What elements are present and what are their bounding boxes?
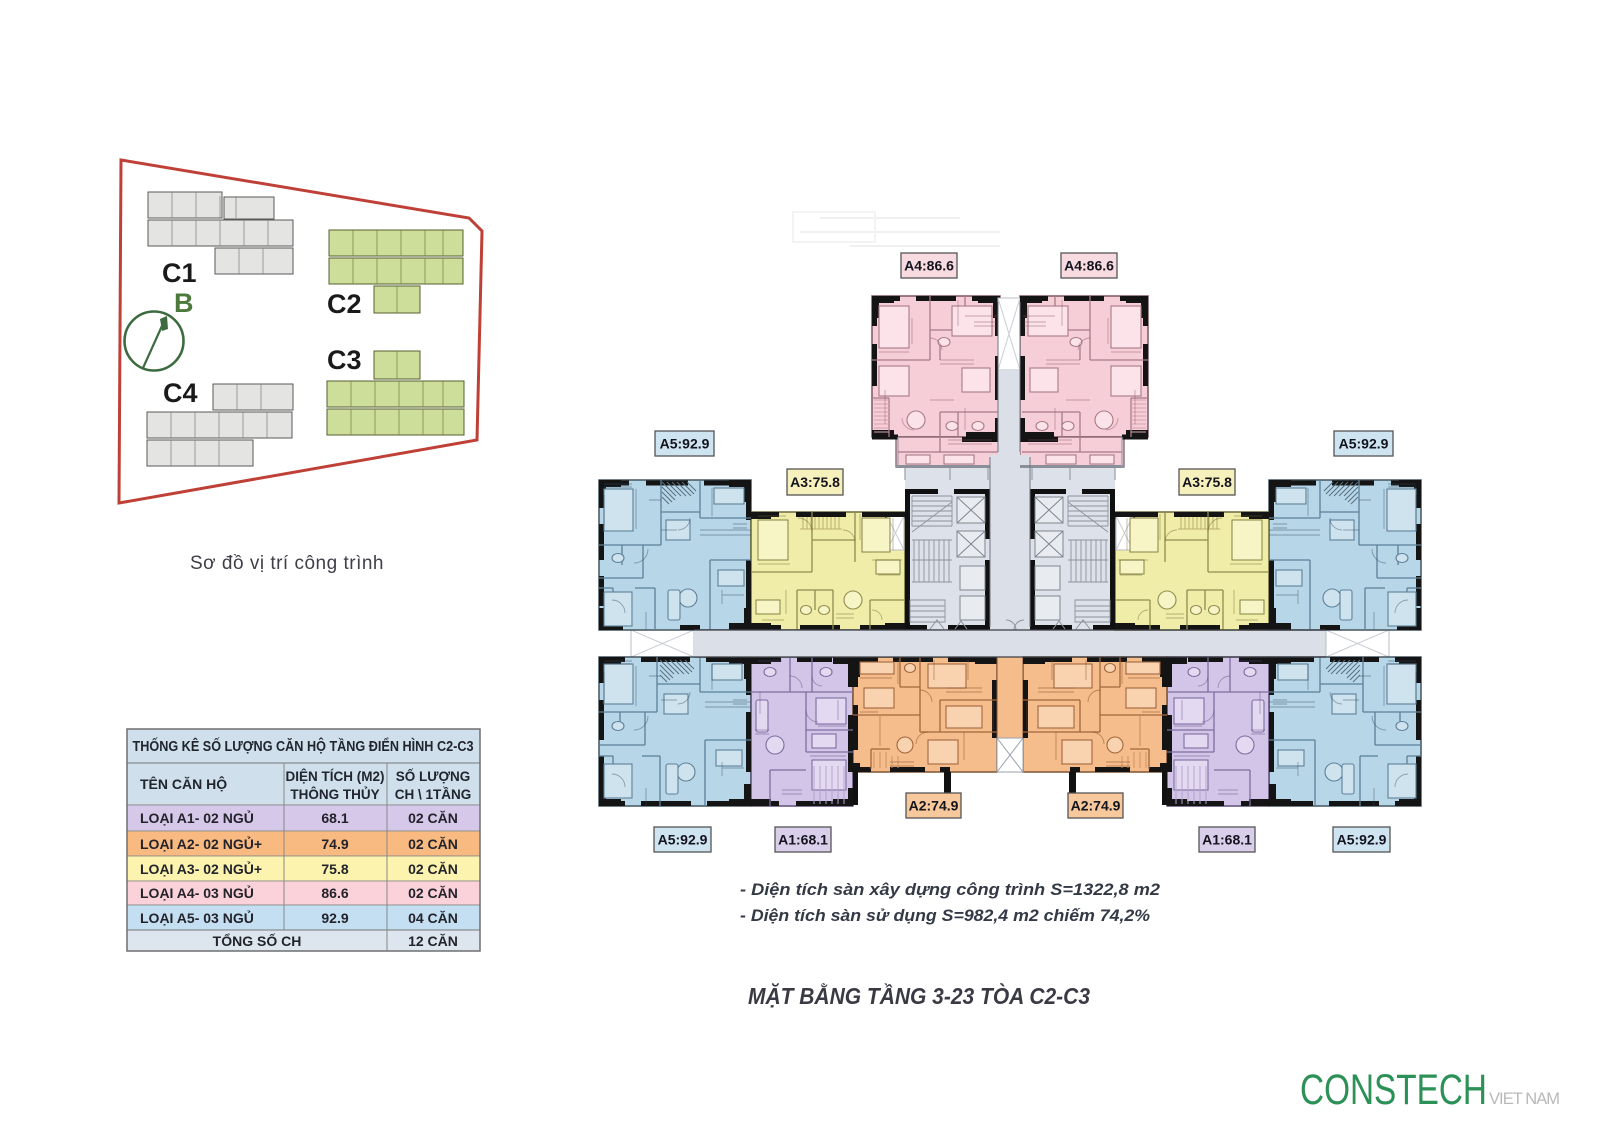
svg-text:A4:86.6: A4:86.6 xyxy=(1064,258,1114,274)
svg-text:SỐ LƯỢNG: SỐ LƯỢNG xyxy=(396,769,470,784)
svg-text:A1:68.1: A1:68.1 xyxy=(1202,832,1252,848)
svg-text:LOẠI A4- 03 NGỦ: LOẠI A4- 03 NGỦ xyxy=(140,884,254,901)
svg-text:A2:74.9: A2:74.9 xyxy=(1071,798,1121,814)
svg-text:LOẠI A1- 02 NGỦ: LOẠI A1- 02 NGỦ xyxy=(140,809,254,826)
svg-text:DIỆN TÍCH (M2): DIỆN TÍCH (M2) xyxy=(286,769,385,784)
svg-text:04 CĂN: 04 CĂN xyxy=(408,910,458,926)
svg-text:A5:92.9: A5:92.9 xyxy=(1339,436,1389,452)
svg-text:68.1: 68.1 xyxy=(321,810,348,826)
svg-text:LOẠI A3- 02 NGỦ+: LOẠI A3- 02 NGỦ+ xyxy=(140,860,262,877)
svg-text:02 CĂN: 02 CĂN xyxy=(408,885,458,901)
svg-text:TỔNG SỐ CH: TỔNG SỐ CH xyxy=(213,932,302,949)
svg-text:92.9: 92.9 xyxy=(321,910,348,926)
svg-text:A3:75.8: A3:75.8 xyxy=(1182,474,1232,490)
svg-text:C4: C4 xyxy=(163,378,198,408)
svg-text:- Diện tích sàn sử dụng S=982,: - Diện tích sàn sử dụng S=982,4 m2 chiếm… xyxy=(740,906,1150,925)
svg-text:Sơ đồ vị trí công trình: Sơ đồ vị trí công trình xyxy=(190,553,384,574)
svg-text:C1: C1 xyxy=(162,258,197,288)
svg-text:LOẠI A2- 02 NGỦ+: LOẠI A2- 02 NGỦ+ xyxy=(140,835,262,852)
svg-text:A5:92.9: A5:92.9 xyxy=(658,832,708,848)
svg-text:CH \ 1TẦNG: CH \ 1TẦNG xyxy=(395,787,472,802)
svg-text:C3: C3 xyxy=(327,345,362,375)
svg-text:A2:74.9: A2:74.9 xyxy=(909,798,959,814)
svg-text:B: B xyxy=(174,288,194,318)
svg-text:A1:68.1: A1:68.1 xyxy=(778,832,828,848)
svg-text:- Diện tích sàn xây dựng công: - Diện tích sàn xây dựng công trình S=13… xyxy=(740,880,1161,899)
svg-text:75.8: 75.8 xyxy=(321,861,348,877)
svg-text:MẶT BẰNG TẦNG 3-23 TÒA C2-C3: MẶT BẰNG TẦNG 3-23 TÒA C2-C3 xyxy=(748,982,1090,1009)
svg-text:VIET NAM: VIET NAM xyxy=(1489,1090,1562,1108)
svg-text:A5:92.9: A5:92.9 xyxy=(1337,832,1387,848)
svg-text:A5:92.9: A5:92.9 xyxy=(660,436,710,452)
svg-text:THỐNG KÊ SỐ LƯỢNG CĂN HỘ TẦNG: THỐNG KÊ SỐ LƯỢNG CĂN HỘ TẦNG ĐIỂN HÌNH … xyxy=(133,737,474,755)
svg-text:A3:75.8: A3:75.8 xyxy=(790,474,840,490)
svg-text:02 CĂN: 02 CĂN xyxy=(408,810,458,826)
svg-text:86.6: 86.6 xyxy=(321,885,348,901)
svg-text:C2: C2 xyxy=(327,289,362,319)
svg-text:TÊN CĂN HỘ: TÊN CĂN HỘ xyxy=(140,775,227,792)
svg-text:02 CĂN: 02 CĂN xyxy=(408,861,458,877)
svg-text:02 CĂN: 02 CĂN xyxy=(408,836,458,852)
svg-text:74.9: 74.9 xyxy=(321,836,348,852)
svg-text:THÔNG THỦY: THÔNG THỦY xyxy=(290,787,379,802)
svg-text:CONSTECH: CONSTECH xyxy=(1300,1066,1487,1114)
svg-text:12 CĂN: 12 CĂN xyxy=(408,933,458,949)
svg-text:A4:86.6: A4:86.6 xyxy=(904,258,954,274)
svg-text:LOẠI A5- 03 NGỦ: LOẠI A5- 03 NGỦ xyxy=(140,909,254,926)
